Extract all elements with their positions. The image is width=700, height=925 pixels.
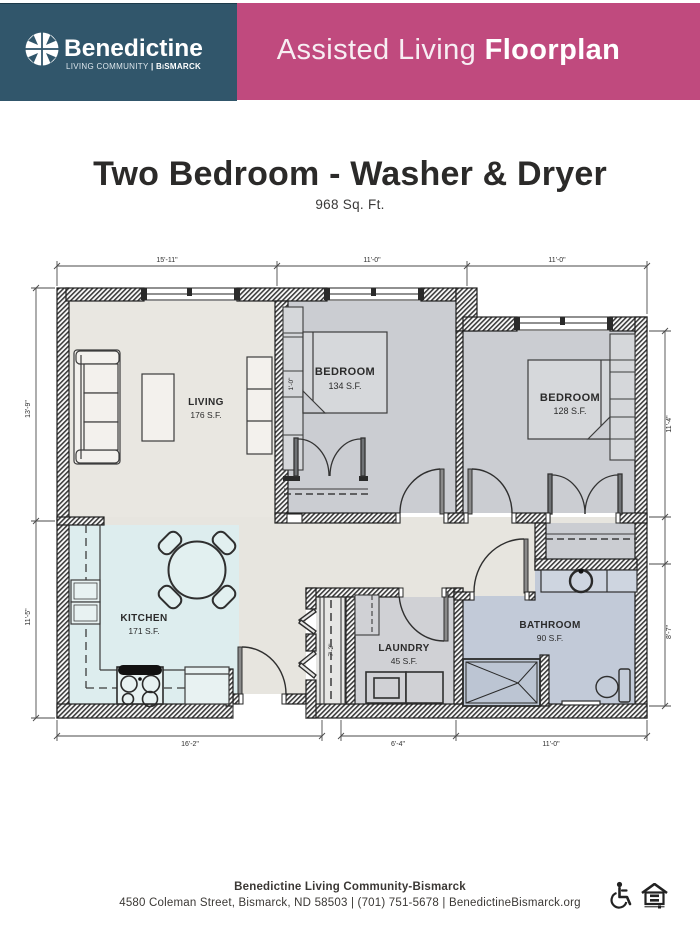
svg-text:13'-9": 13'-9" <box>25 400 32 418</box>
svg-text:BATHROOM: BATHROOM <box>519 620 580 631</box>
svg-text:45 S.F.: 45 S.F. <box>391 656 417 666</box>
svg-text:134 S.F.: 134 S.F. <box>328 381 361 391</box>
svg-text:8'-7": 8'-7" <box>666 625 673 639</box>
svg-text:90 S.F.: 90 S.F. <box>537 633 563 643</box>
svg-text:11'-5": 11'-5" <box>25 608 32 626</box>
svg-text:7'-2": 7'-2" <box>328 643 335 657</box>
svg-text:LAUNDRY: LAUNDRY <box>378 643 429 654</box>
svg-text:BEDROOM: BEDROOM <box>540 392 600 404</box>
svg-text:LIVING: LIVING <box>188 397 224 408</box>
svg-text:BEDROOM: BEDROOM <box>315 366 375 378</box>
svg-text:KITCHEN: KITCHEN <box>120 613 167 624</box>
svg-text:171 S.F.: 171 S.F. <box>128 626 159 636</box>
svg-text:16'-2": 16'-2" <box>181 741 199 748</box>
svg-text:6'-4": 6'-4" <box>391 741 405 748</box>
svg-text:128 S.F.: 128 S.F. <box>553 406 586 416</box>
svg-text:11'-0": 11'-0" <box>548 257 566 264</box>
svg-text:1'-0": 1'-0" <box>288 377 295 391</box>
svg-text:11'-0": 11'-0" <box>542 741 560 748</box>
svg-text:15'-11": 15'-11" <box>156 257 178 264</box>
svg-text:11'-4": 11'-4" <box>666 415 673 433</box>
svg-text:11'-0": 11'-0" <box>363 257 381 264</box>
svg-text:176 S.F.: 176 S.F. <box>190 410 221 420</box>
